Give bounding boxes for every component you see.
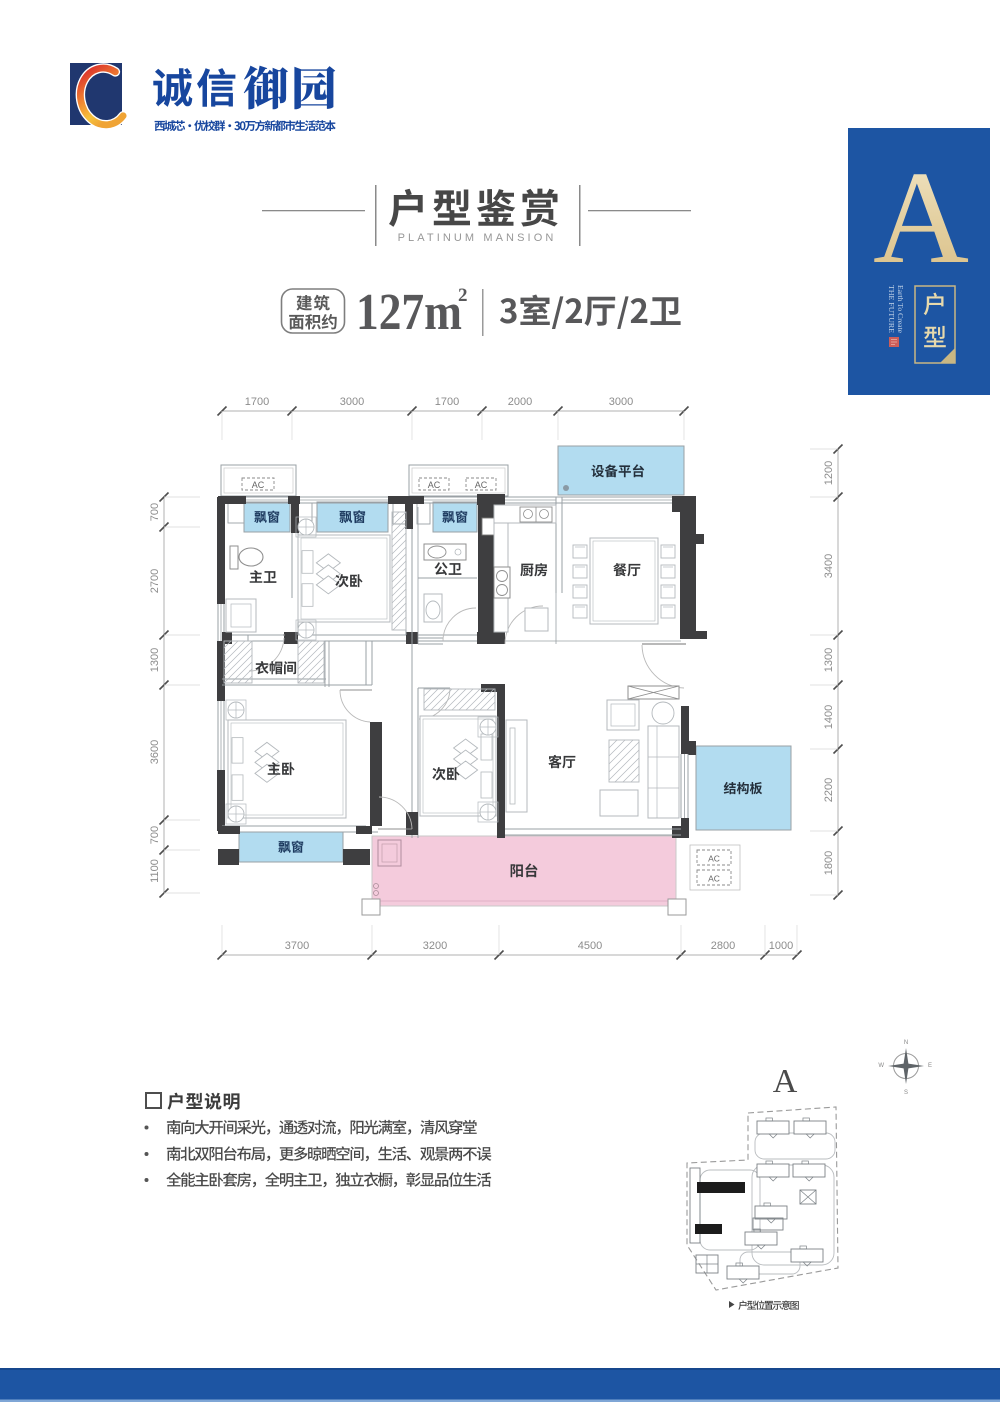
- svg-text:AC: AC: [428, 480, 441, 490]
- svg-text:THE FUTURE: THE FUTURE: [887, 285, 896, 333]
- svg-text:2200: 2200: [823, 778, 835, 802]
- svg-text:PLATINUM MANSION: PLATINUM MANSION: [398, 232, 557, 244]
- svg-text:1800: 1800: [823, 851, 835, 875]
- svg-text:1400: 1400: [823, 705, 835, 729]
- svg-text:AC: AC: [252, 480, 265, 490]
- svg-text:E: E: [928, 1063, 932, 1069]
- svg-text:AC: AC: [708, 874, 720, 884]
- svg-text:127m: 127m: [356, 284, 462, 341]
- svg-text:1000: 1000: [769, 940, 793, 952]
- svg-text:A: A: [873, 143, 969, 291]
- svg-text:2000: 2000: [508, 396, 532, 408]
- svg-text:1700: 1700: [245, 396, 269, 408]
- svg-text:S: S: [904, 1090, 908, 1096]
- svg-text:3700: 3700: [285, 940, 309, 952]
- svg-text:Earth To Create: Earth To Create: [896, 285, 905, 334]
- svg-text:2: 2: [458, 285, 468, 306]
- svg-text:1100: 1100: [149, 859, 161, 883]
- svg-text:700: 700: [149, 503, 161, 521]
- svg-text:3600: 3600: [149, 740, 161, 764]
- svg-text:1200: 1200: [823, 461, 835, 485]
- svg-text:2800: 2800: [711, 940, 735, 952]
- svg-text:3000: 3000: [609, 396, 633, 408]
- svg-text:AC: AC: [475, 480, 488, 490]
- svg-text:1700: 1700: [435, 396, 459, 408]
- svg-text:3000: 3000: [340, 396, 364, 408]
- svg-text:700: 700: [149, 826, 161, 844]
- svg-text:1300: 1300: [149, 648, 161, 672]
- svg-text:W: W: [878, 1063, 884, 1069]
- svg-text:3200: 3200: [423, 940, 447, 952]
- svg-text:1300: 1300: [823, 648, 835, 672]
- svg-text:AC: AC: [708, 854, 720, 864]
- svg-text:A: A: [773, 1063, 798, 1100]
- svg-text:3400: 3400: [823, 554, 835, 578]
- svg-text:4500: 4500: [578, 940, 602, 952]
- svg-text:2700: 2700: [149, 569, 161, 593]
- svg-text:N: N: [904, 1040, 908, 1046]
